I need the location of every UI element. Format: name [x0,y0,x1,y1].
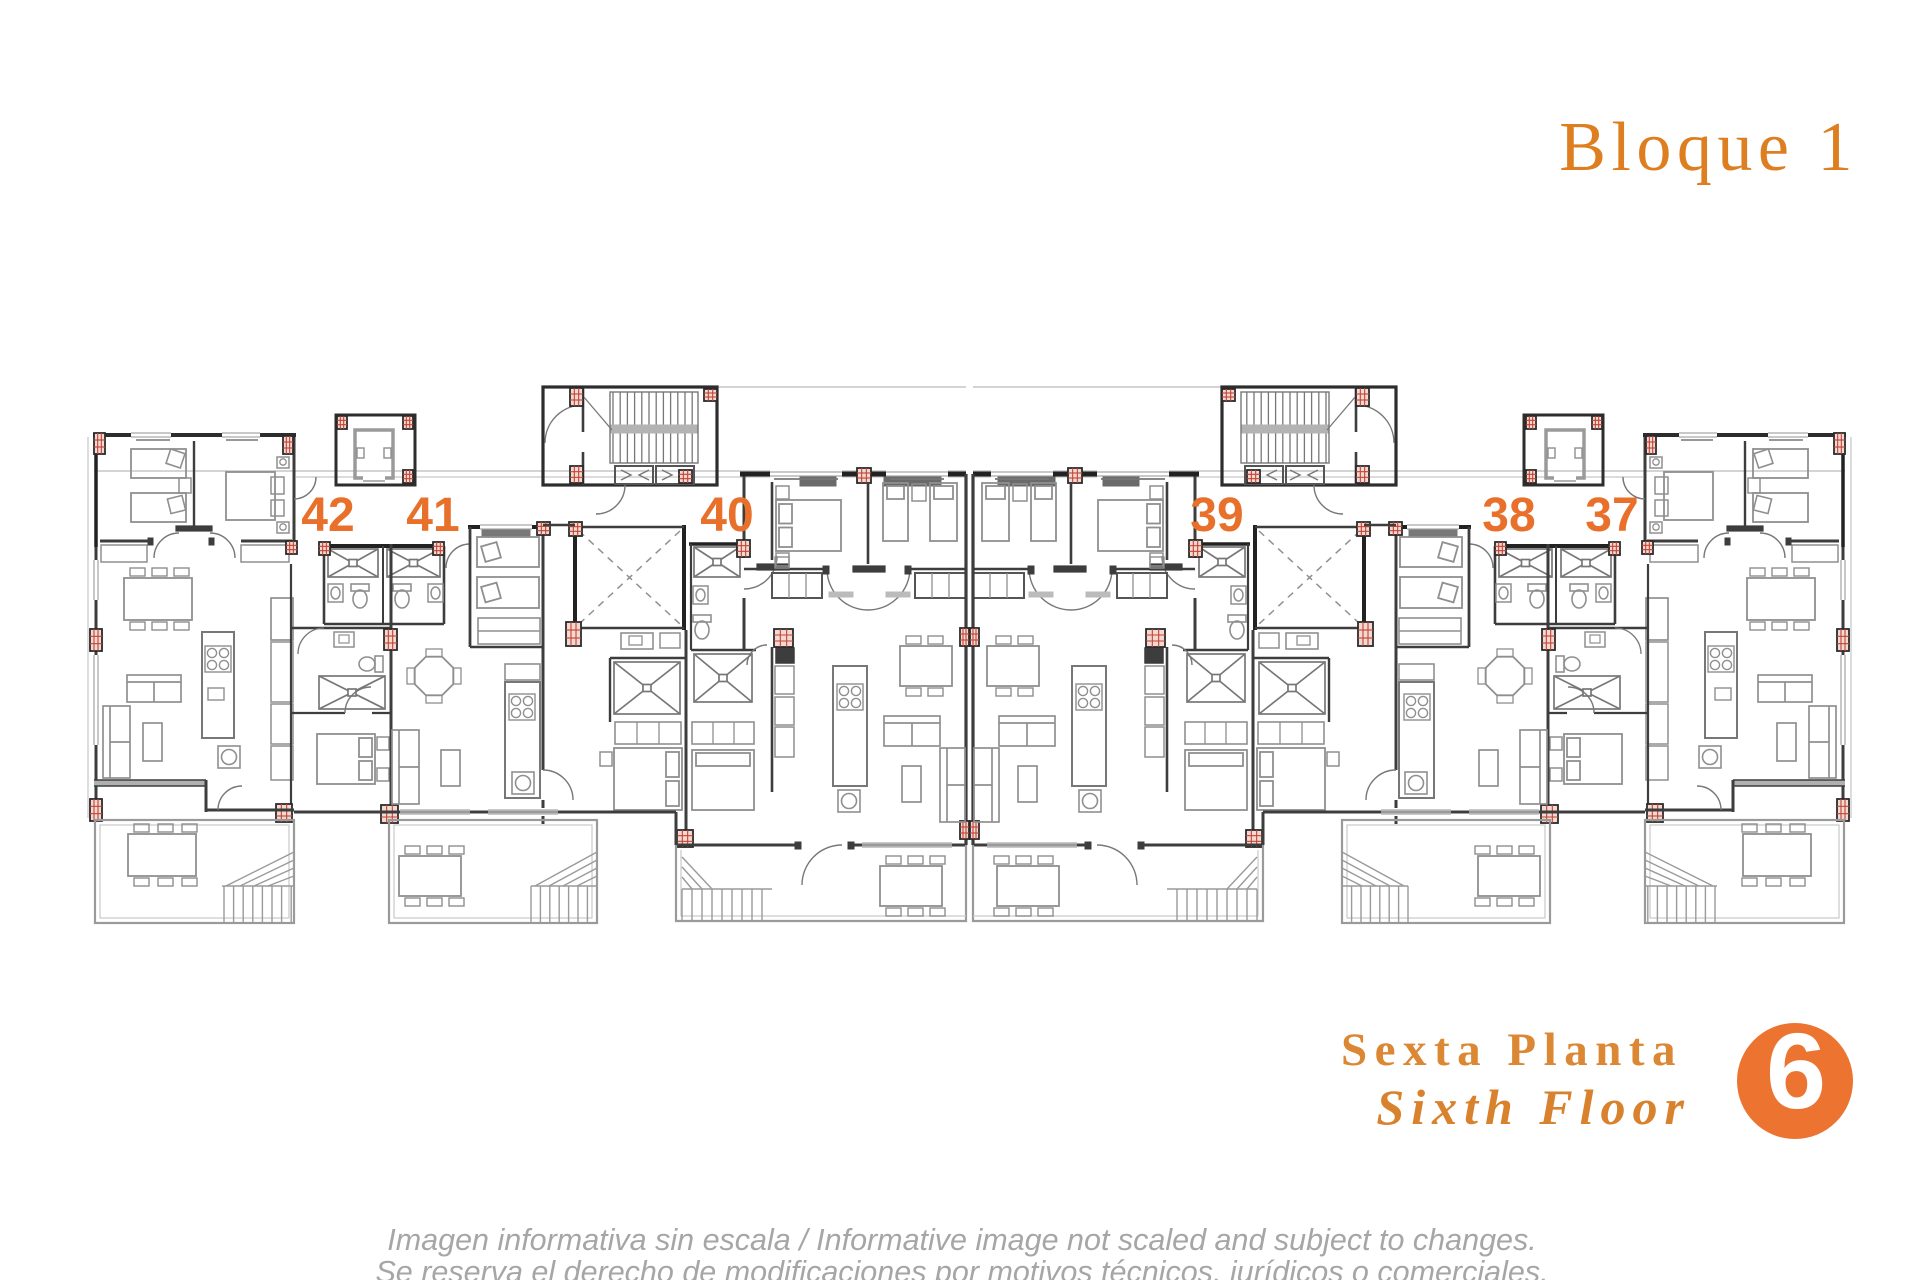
svg-text:Se reserva el derecho de modif: Se reserva el derecho de modificaciones … [375,1255,1548,1280]
svg-text:6: 6 [1766,1010,1826,1131]
svg-text:Imagen informativa sin escala: Imagen informativa sin escala / Informat… [387,1223,1536,1257]
svg-text:38: 38 [1482,489,1535,542]
svg-text:Sixth Floor: Sixth Floor [1376,1079,1691,1135]
svg-text:39: 39 [1190,489,1243,542]
svg-text:Sexta Planta: Sexta Planta [1341,1024,1683,1076]
svg-text:41: 41 [406,489,459,542]
svg-text:Bloque 1: Bloque 1 [1559,109,1858,186]
svg-text:40: 40 [700,489,753,542]
svg-text:42: 42 [301,489,354,542]
svg-text:37: 37 [1585,489,1638,542]
